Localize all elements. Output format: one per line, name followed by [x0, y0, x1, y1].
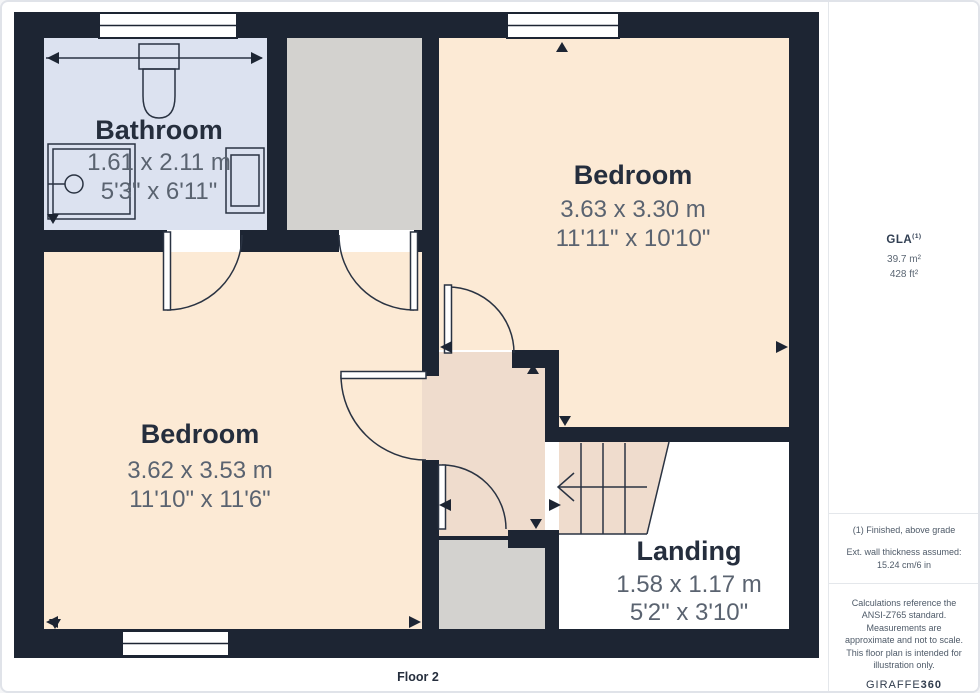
note-finished-grade: (1) Finished, above grade: [841, 524, 967, 537]
info-sidebar: GLA(1) 39.7 m² 428 ft² (1) Finished, abo…: [828, 2, 979, 691]
wall-segment: [439, 536, 509, 540]
landing-dims-imperial: 5'2" x 3'10": [630, 599, 748, 626]
disclaimer-text: Calculations reference the ANSI-Z765 sta…: [843, 597, 965, 672]
floor-plan-canvas: Bathroom 1.61 x 2.11 m 5'3" x 6'11" Bedr…: [2, 2, 828, 693]
bedroom-topright-dims-imperial: 11'11" x 10'10": [556, 225, 711, 252]
gla-section: GLA(1) 39.7 m² 428 ft²: [829, 2, 979, 513]
wall-segment: [44, 230, 167, 252]
gla-metric: 39.7 m²: [886, 252, 921, 267]
bathroom-title: Bathroom: [95, 115, 223, 145]
window: [507, 13, 619, 38]
gla-values: 39.7 m² 428 ft²: [886, 252, 921, 282]
wall-segment: [789, 12, 819, 658]
wall-segment: [512, 350, 559, 368]
wall-segment: [545, 530, 559, 629]
window: [122, 631, 229, 656]
gla-label: GLA: [886, 234, 912, 246]
brand-bold: 360: [921, 679, 942, 691]
notes-section: (1) Finished, above grade Ext. wall thic…: [829, 513, 979, 583]
gla-imperial: 428 ft²: [886, 267, 921, 282]
closet-top-floor: [287, 38, 422, 230]
wall-segment: [422, 460, 439, 629]
landing-dims-metric: 1.58 x 1.17 m: [616, 571, 761, 598]
bedroom-topright-dims-metric: 3.63 x 3.30 m: [560, 196, 705, 223]
bathroom-dims-metric: 1.61 x 2.11 m: [87, 149, 231, 176]
note-wall-thickness: Ext. wall thickness assumed: 15.24 cm/6 …: [841, 546, 967, 571]
bedroom-bottomleft-dims-metric: 3.62 x 3.53 m: [127, 457, 272, 484]
floorplan-page: Bathroom 1.61 x 2.11 m 5'3" x 6'11" Bedr…: [0, 0, 980, 693]
brand-regular: GIRAFFE: [866, 679, 921, 691]
door-opening-floor: [422, 376, 439, 460]
floor-label: Floor 2: [397, 670, 439, 684]
gla-title: GLA(1): [886, 233, 921, 246]
closet-bottom-floor: [439, 540, 545, 629]
wall-segment: [14, 12, 44, 658]
bedroom-bottomleft-title: Bedroom: [141, 419, 260, 449]
bathroom-dims-imperial: 5'3" x 6'11": [101, 178, 218, 205]
wall-segment: [545, 427, 789, 442]
landing-hall-floor: [439, 352, 545, 536]
window: [99, 13, 237, 38]
disclaimer-section: Calculations reference the ANSI-Z765 sta…: [829, 583, 979, 692]
bedroom-bottomleft-dims-imperial: 11'10" x 11'6": [129, 486, 270, 513]
gla-superscript: (1): [912, 233, 921, 240]
giraffe360-logo: GIRAFFE360: [843, 679, 965, 692]
wall-segment: [422, 12, 439, 376]
landing-title: Landing: [637, 536, 742, 566]
wall-segment: [267, 12, 287, 252]
bedroom-topright-title: Bedroom: [574, 160, 693, 190]
wall-segment: [240, 230, 339, 252]
